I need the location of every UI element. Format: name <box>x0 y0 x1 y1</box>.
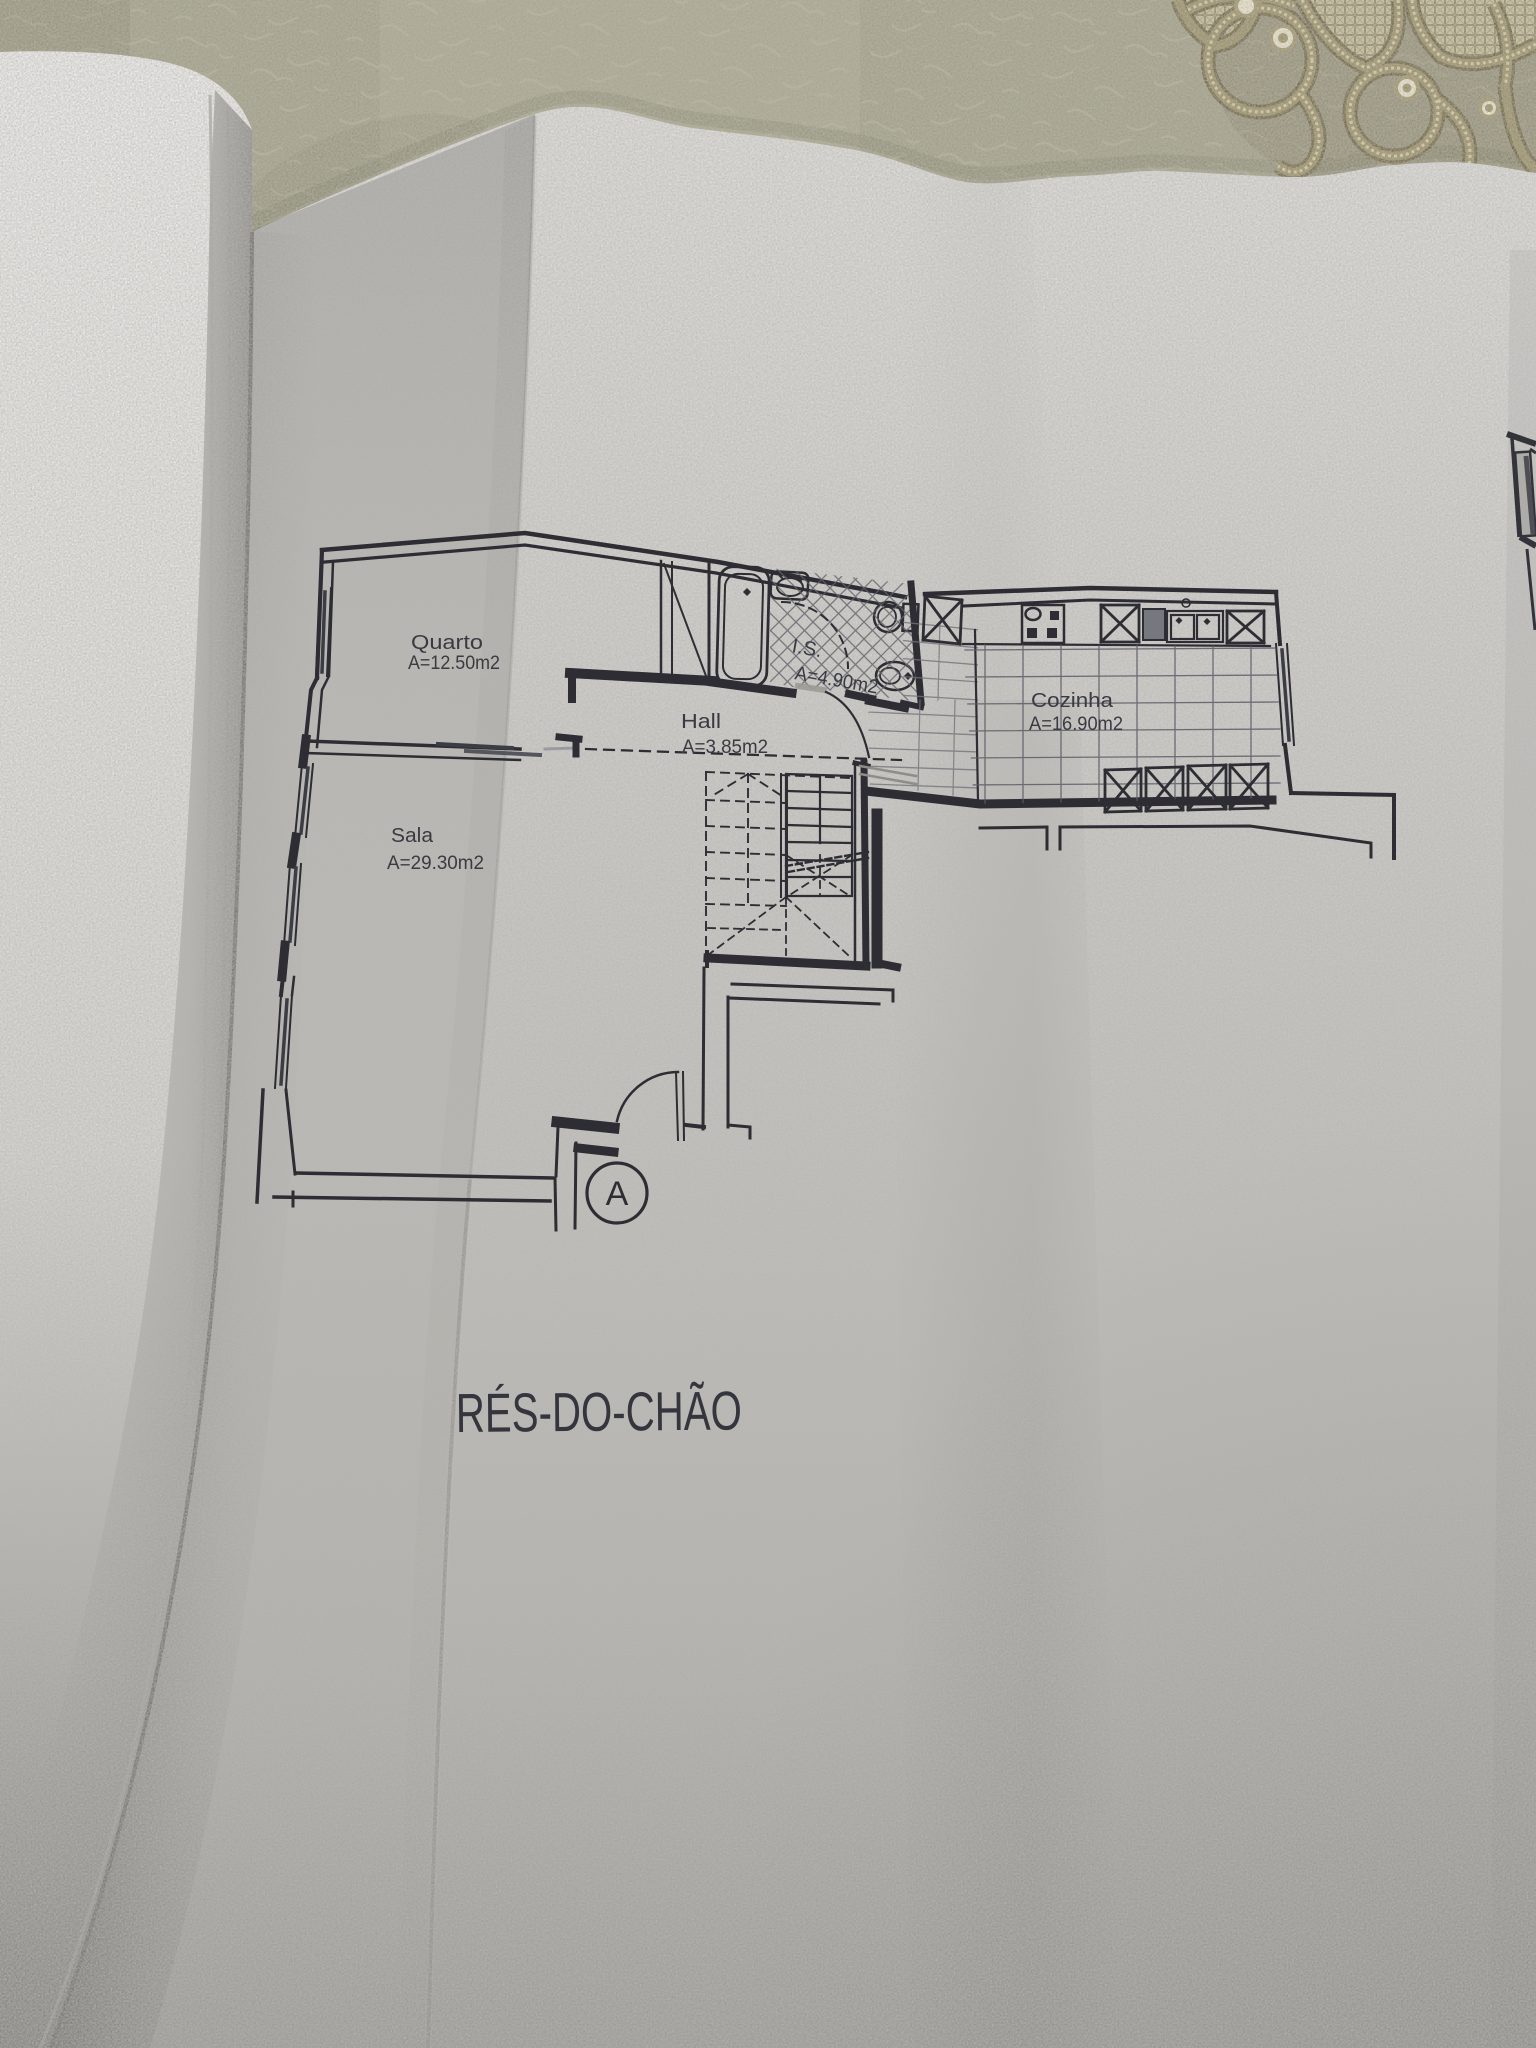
svg-text:A=16.90m2: A=16.90m2 <box>1029 713 1123 735</box>
svg-text:Sala: Sala <box>391 825 434 847</box>
svg-text:A=12.50m2: A=12.50m2 <box>408 652 500 674</box>
svg-text:Cozinha: Cozinha <box>1031 690 1114 712</box>
svg-text:Hall: Hall <box>681 711 721 733</box>
svg-text:RÉS-DO-CHÃO: RÉS-DO-CHÃO <box>456 1380 743 1444</box>
svg-text:A=29.30m2: A=29.30m2 <box>387 852 484 874</box>
svg-text:Quarto: Quarto <box>411 632 483 654</box>
svg-text:A=3.85m2: A=3.85m2 <box>682 736 768 758</box>
svg-text:A: A <box>606 1175 629 1213</box>
